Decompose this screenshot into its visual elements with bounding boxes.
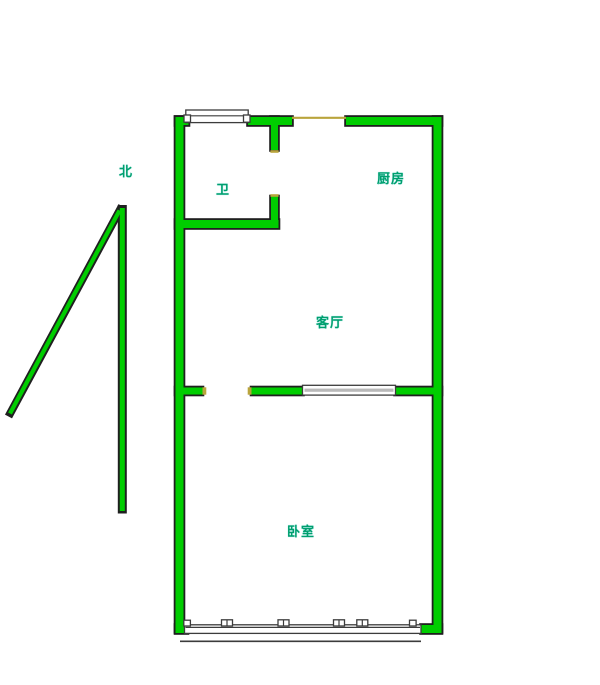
bath-door-jamb-bottom (270, 194, 278, 197)
north-label: 北 (119, 166, 133, 180)
bottom-window-post-left (184, 620, 191, 626)
north-arrow-diagonal (10, 211, 120, 414)
bedroom-door-jamb-right (248, 387, 252, 394)
wall-mid-right-segment (395, 388, 442, 395)
bottom-window-mullion-1 (222, 620, 233, 626)
bottom-window-frame (185, 625, 422, 634)
wall-bath-bottom (176, 220, 279, 228)
floorplan-drawing (0, 0, 600, 685)
wall-bath-stub-upper (271, 117, 278, 150)
bedroom-door-jamb-left (203, 387, 207, 394)
living-room-label: 客厅 (316, 317, 344, 331)
bath-door-jamb-top (270, 150, 278, 153)
bottom-window-mullion-4 (357, 620, 368, 626)
wall-bath-stub-lower (271, 197, 278, 221)
bathroom-label: 卫 (216, 184, 230, 198)
door-jamb-marks (203, 118, 347, 395)
north-arrow-icon (9, 205, 123, 514)
partition-window-pane (305, 389, 394, 392)
floorplan-canvas: 北 卫 厨房 客厅 卧室 (0, 0, 600, 685)
top-window-post-left (184, 115, 191, 122)
bottom-window-mullion-2 (278, 620, 289, 626)
top-window-post-right (244, 115, 251, 122)
wall-right (434, 117, 442, 632)
partition-window (303, 385, 396, 395)
wall-top-3 (346, 117, 442, 125)
wall-left (176, 117, 184, 632)
top-window (184, 110, 250, 123)
bedroom-label: 卧室 (287, 526, 315, 540)
bottom-window-post-right (410, 620, 417, 626)
kitchen-label: 厨房 (377, 173, 405, 187)
wall-outlines (174, 115, 444, 635)
bedroom-window-band (180, 620, 421, 642)
wall-bottom-right-corner (421, 625, 442, 633)
wall-top-2 (248, 117, 292, 125)
wall-mid-left-stub (176, 388, 203, 395)
wall-mid-segment (252, 388, 304, 395)
bottom-window-mullion-3 (334, 620, 345, 626)
